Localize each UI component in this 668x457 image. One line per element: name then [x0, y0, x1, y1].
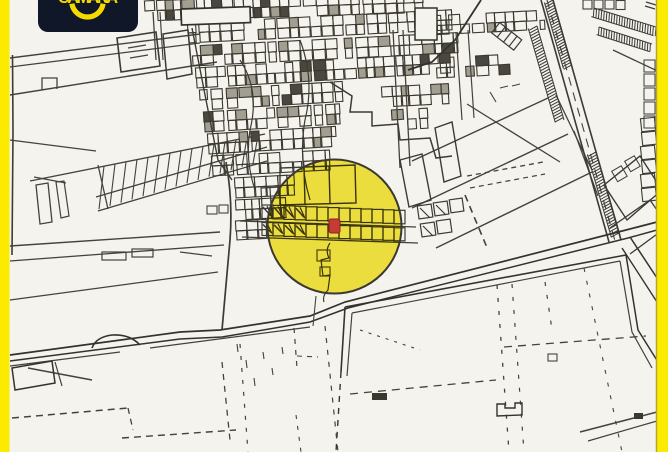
svg-text:CAMANA: CAMANA	[58, 0, 118, 7]
